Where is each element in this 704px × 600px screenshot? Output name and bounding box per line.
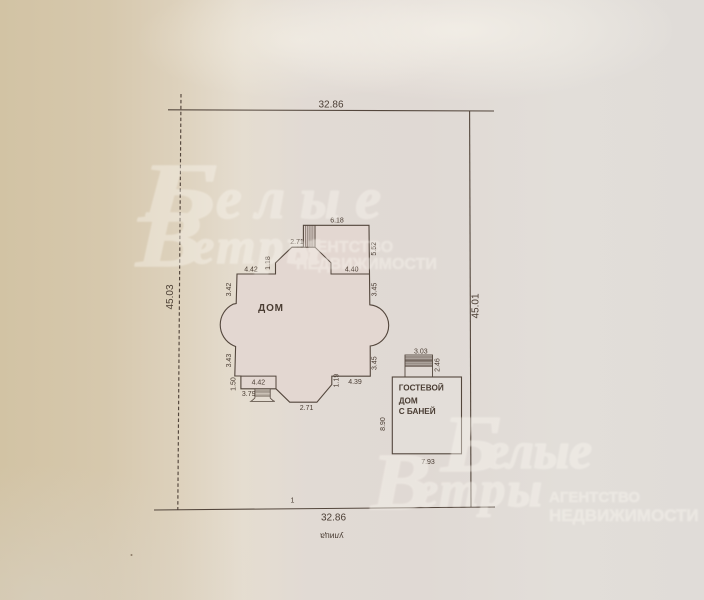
svg-text:3.79: 3.79 xyxy=(242,391,256,398)
svg-text:4.39: 4.39 xyxy=(348,379,362,386)
svg-text:С БАНЕЙ: С БАНЕЙ xyxy=(399,405,436,416)
svg-text:2.46: 2.46 xyxy=(434,358,441,372)
svg-text:АГЕНТСТВО: АГЕНТСТВО xyxy=(549,489,640,506)
svg-text:улица: улица xyxy=(320,532,344,542)
svg-text:3.45: 3.45 xyxy=(371,283,378,297)
svg-text:етры: етры xyxy=(416,461,544,517)
svg-text:3.03: 3.03 xyxy=(414,348,428,355)
svg-text:1.19: 1.19 xyxy=(333,374,340,388)
svg-text:3.45: 3.45 xyxy=(371,356,378,370)
svg-text:32.86: 32.86 xyxy=(318,100,343,111)
svg-text:ДОМ: ДОМ xyxy=(399,396,418,405)
svg-text:3.43: 3.43 xyxy=(226,354,233,368)
svg-text:4.42: 4.42 xyxy=(252,379,266,386)
svg-text:НЕДВИЖИМОСТИ: НЕДВИЖИМОСТИ xyxy=(296,256,437,273)
svg-text:НЕДВИЖИМОСТИ: НЕДВИЖИМОСТИ xyxy=(549,506,699,525)
svg-text:АГЕНТСТВО: АГЕНТСТВО xyxy=(296,239,393,256)
svg-text:32.86: 32.86 xyxy=(321,512,346,523)
svg-text:45.01: 45.01 xyxy=(471,293,482,318)
svg-text:8.90: 8.90 xyxy=(380,417,387,431)
svg-text:1: 1 xyxy=(290,497,294,504)
svg-text:2.71: 2.71 xyxy=(300,405,314,412)
svg-text:ДОМ: ДОМ xyxy=(258,303,284,314)
svg-text:45.03: 45.03 xyxy=(165,284,176,309)
svg-text:3.42: 3.42 xyxy=(226,283,233,297)
svg-text:ГОСТЕВОЙ: ГОСТЕВОЙ xyxy=(399,382,444,393)
svg-text:1.50: 1.50 xyxy=(230,377,237,391)
